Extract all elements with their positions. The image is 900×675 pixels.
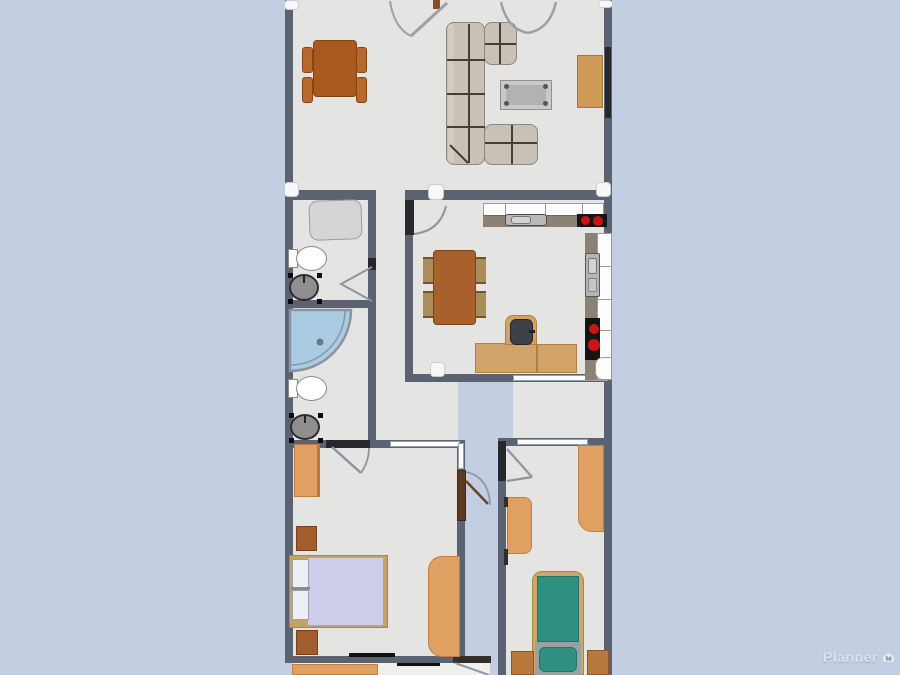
bed-pillow bbox=[292, 559, 309, 588]
bedroom-right-door-frame[interactable] bbox=[498, 441, 506, 481]
exterior-door-swing[interactable] bbox=[466, 472, 490, 505]
washing-machine-handle bbox=[304, 416, 306, 423]
wc-door-frame[interactable] bbox=[368, 258, 376, 270]
pillow-divider bbox=[291, 587, 310, 590]
nightstand[interactable] bbox=[296, 526, 317, 551]
living-desk[interactable] bbox=[577, 55, 603, 108]
coffee-table-top bbox=[506, 85, 546, 105]
nightstand[interactable] bbox=[296, 630, 318, 655]
exterior-door-panel[interactable] bbox=[457, 470, 466, 521]
kitchen-chair[interactable] bbox=[476, 291, 486, 318]
wall-bedroom-left-bottom[interactable] bbox=[285, 656, 453, 663]
bedroom-left-vent bbox=[349, 653, 395, 657]
sofa-seam bbox=[511, 125, 513, 164]
washing-machine-foot bbox=[318, 438, 323, 443]
office-desk[interactable] bbox=[475, 343, 537, 373]
bedroom-desk[interactable] bbox=[428, 556, 460, 657]
wall-marker[interactable] bbox=[284, 182, 299, 197]
office-chair-arm bbox=[529, 330, 535, 333]
bedroom-left-side-window[interactable] bbox=[458, 443, 464, 469]
dining-chair[interactable] bbox=[356, 77, 367, 103]
long-desk[interactable] bbox=[578, 445, 604, 532]
sofa-seam bbox=[447, 59, 485, 61]
wall-marker[interactable] bbox=[284, 0, 299, 10]
wall-dark-segment[interactable] bbox=[453, 656, 491, 663]
door-panel[interactable] bbox=[433, 0, 440, 9]
coffee-table-bolt bbox=[543, 101, 548, 106]
lower-room-vent bbox=[397, 663, 440, 666]
kitchen-chair[interactable] bbox=[423, 291, 433, 318]
wall-bathroom-right[interactable] bbox=[368, 190, 376, 448]
wardrobe[interactable] bbox=[294, 444, 320, 497]
washing-machine[interactable] bbox=[289, 413, 323, 443]
nightstand[interactable] bbox=[511, 651, 534, 675]
toilet-bowl bbox=[296, 246, 327, 271]
dining-chair[interactable] bbox=[356, 47, 367, 73]
sofa-seam bbox=[485, 142, 537, 144]
side-cabinet[interactable] bbox=[507, 497, 532, 554]
lower-room-bed[interactable] bbox=[292, 664, 378, 675]
coffee-table-bolt bbox=[504, 84, 509, 89]
sofa-seam bbox=[447, 93, 485, 95]
balcony-floor bbox=[513, 382, 604, 438]
bed-pillow bbox=[292, 590, 309, 620]
cabinet-handle bbox=[504, 497, 508, 507]
kitchen-end-cabinet[interactable] bbox=[595, 357, 612, 380]
wall-marker[interactable] bbox=[598, 0, 613, 8]
watermark: Planner 5d bbox=[823, 645, 895, 669]
coffee-table-bolt bbox=[543, 84, 548, 89]
dining-table[interactable] bbox=[313, 40, 357, 97]
wall-tv[interactable] bbox=[605, 47, 611, 118]
cabinet-divider bbox=[597, 299, 612, 300]
wall-marker[interactable] bbox=[428, 184, 444, 200]
bathtub[interactable] bbox=[308, 199, 362, 241]
kitchen-side-sink-drainer bbox=[588, 278, 597, 292]
bedroom-left-window[interactable] bbox=[390, 441, 460, 447]
washing-machine-foot bbox=[318, 413, 323, 418]
kitchen-sink-bowl bbox=[511, 216, 531, 224]
double-bed-mattress bbox=[308, 558, 383, 625]
kitchen-door-panel[interactable] bbox=[405, 200, 414, 235]
office-desk-return[interactable] bbox=[537, 344, 577, 373]
cabinet-handle bbox=[504, 549, 508, 565]
single-bed-mattress bbox=[537, 576, 579, 642]
floorplan-canvas: Planner 5d bbox=[0, 0, 900, 675]
dining-chair[interactable] bbox=[302, 77, 313, 103]
watermark-brand-text: Planner bbox=[823, 649, 878, 665]
kitchen-chair[interactable] bbox=[423, 257, 433, 284]
bed-blanket bbox=[539, 647, 577, 672]
watermark-logo-icon: 5d bbox=[882, 647, 895, 668]
wall-marker[interactable] bbox=[596, 182, 611, 197]
washing-machine[interactable] bbox=[288, 273, 322, 304]
corridor-floor bbox=[376, 190, 405, 382]
bedroom-left-door-frame[interactable] bbox=[326, 440, 370, 448]
wall-marker[interactable] bbox=[430, 362, 445, 377]
exterior-door-panel-line[interactable] bbox=[466, 481, 488, 504]
hallway-floor bbox=[376, 382, 458, 440]
stove-burner bbox=[581, 216, 590, 225]
washing-machine-handle bbox=[303, 276, 305, 283]
washing-machine-foot bbox=[288, 299, 293, 304]
washing-machine-foot bbox=[289, 438, 294, 443]
sofa-seam bbox=[485, 43, 516, 45]
dining-chair[interactable] bbox=[302, 47, 313, 73]
kitchen-side-sink-bowl bbox=[588, 258, 597, 274]
nightstand[interactable] bbox=[587, 650, 609, 675]
stove-burner bbox=[589, 324, 599, 334]
kitchen-table[interactable] bbox=[433, 250, 476, 325]
kitchen-chair[interactable] bbox=[476, 257, 486, 284]
toilet-bowl bbox=[296, 376, 327, 401]
watermark-badge-text: 5d bbox=[885, 656, 891, 662]
coffee-table-bolt bbox=[504, 101, 509, 106]
washing-machine-foot bbox=[317, 299, 322, 304]
washing-machine-foot bbox=[317, 273, 322, 278]
stove-burner bbox=[593, 216, 603, 226]
stove-burner bbox=[588, 339, 600, 351]
sofa-seam bbox=[447, 126, 485, 128]
